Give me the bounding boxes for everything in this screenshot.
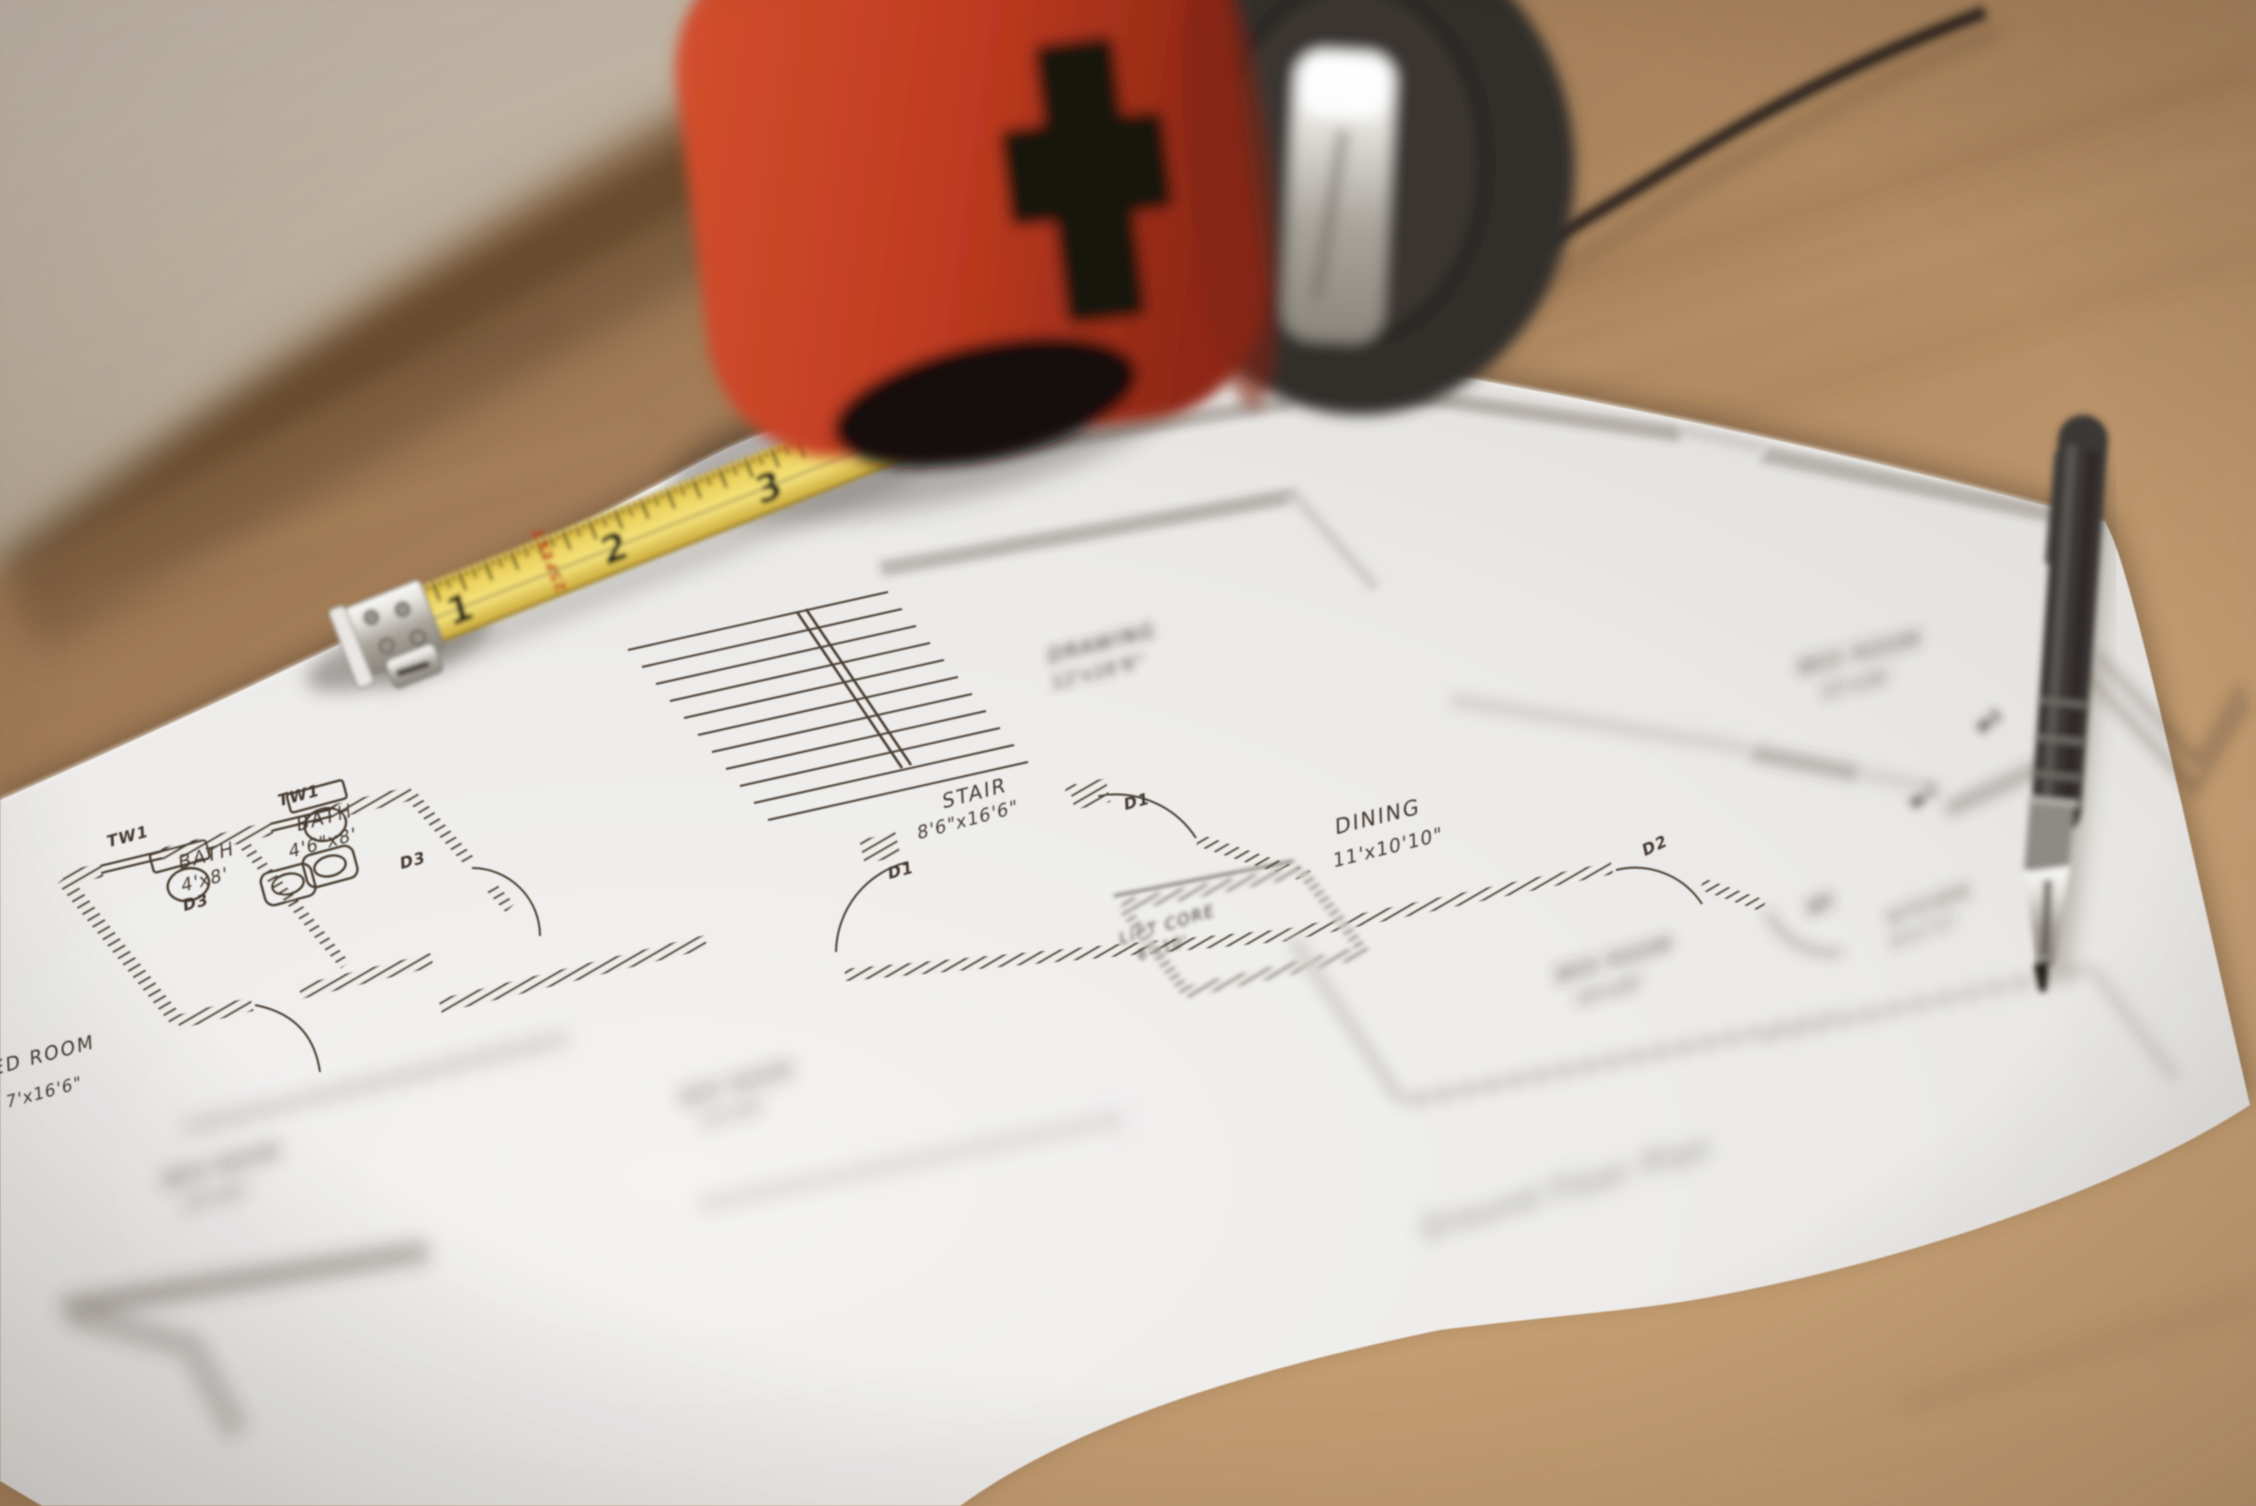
photo-scene: TW1 TW1 BATH 4'x8' BATH 4'6"x8' D3 D3 ST… [0, 0, 2256, 1506]
vignette-overlay [0, 0, 2256, 1506]
scene-svg: TW1 TW1 BATH 4'x8' BATH 4'6"x8' D3 D3 ST… [0, 0, 2256, 1506]
